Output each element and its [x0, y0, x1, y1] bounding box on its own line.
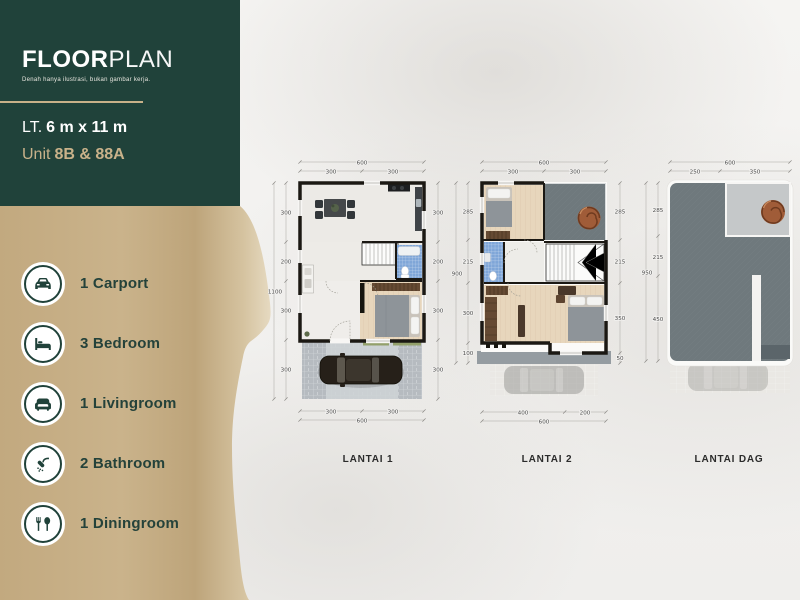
- sidebar-panel: FLOORPLAN Denah hanya ilustrasi, bukan g…: [0, 0, 240, 206]
- sofa-icon: [24, 385, 62, 423]
- dim-label: 300: [433, 309, 444, 315]
- dim-label: 250: [690, 170, 701, 176]
- car-faint: [504, 366, 584, 394]
- dim-label: 50: [616, 356, 624, 362]
- unit-prefix: Unit: [22, 146, 50, 163]
- bedroom-2: [486, 187, 512, 239]
- dim-label: 300: [281, 368, 292, 374]
- floorplan-lantai-dag: 600 250 350 950 285 215 450: [640, 155, 800, 440]
- car-icon: [24, 265, 62, 303]
- dim-label: 300: [281, 211, 292, 217]
- feature-bathroom: 2 Bathroom: [24, 441, 179, 486]
- feature-diningroom-label: 1 Diningroom: [80, 515, 179, 532]
- dim-label: 215: [615, 260, 626, 266]
- feature-bedroom-label: 3 Bedroom: [80, 335, 160, 352]
- bathroom-2: [484, 242, 504, 283]
- car-faint: [688, 363, 768, 391]
- floorplan-lantai-2: 600 300 300 900 285 215 300 100 285 215 …: [450, 155, 640, 440]
- roof-slab: [667, 180, 793, 366]
- feature-carport: 1 Carport: [24, 261, 179, 306]
- dim-label: 200: [281, 260, 292, 266]
- dim-label: 300: [326, 170, 337, 176]
- staircase-2: [546, 244, 604, 281]
- dim-label: 900: [452, 272, 463, 278]
- dim-label: 600: [539, 161, 550, 167]
- lot-size-value: 6 m x 11 m: [46, 119, 127, 136]
- lot-size-line: LT.6 m x 11 m: [22, 119, 127, 137]
- dim-label: 300: [326, 410, 337, 416]
- tree: [761, 200, 785, 224]
- staircase: [362, 243, 398, 265]
- dim-label: 200: [580, 411, 591, 417]
- dim-label: 950: [642, 271, 653, 277]
- car-top-view: [318, 353, 404, 388]
- dim-label: 100: [463, 351, 474, 357]
- brand-title: FLOORPLAN: [22, 48, 173, 72]
- feature-diningroom: 1 Diningroom: [24, 501, 179, 546]
- dim-label: 200: [433, 260, 444, 266]
- dim-label: 300: [508, 170, 519, 176]
- plan-label-lantai-dag: LANTAI DAG: [695, 454, 764, 465]
- plan-label-lantai-2: LANTAI 2: [522, 454, 573, 465]
- tree: [578, 207, 601, 230]
- dim-label: 300: [433, 368, 444, 374]
- dim-label: 600: [539, 420, 550, 426]
- dim-label: 285: [615, 210, 626, 216]
- lot-prefix: LT.: [22, 119, 42, 136]
- dim-label: 215: [653, 255, 664, 261]
- dim-label: 300: [463, 311, 474, 317]
- plan-label-lantai-1: LANTAI 1: [343, 454, 394, 465]
- dim-label: 300: [570, 170, 581, 176]
- unit-line: Unit8B & 88A: [22, 146, 125, 164]
- dim-label: 285: [653, 208, 664, 214]
- brand-title-bold: FLOOR: [22, 46, 109, 73]
- dim-label: 300: [388, 170, 399, 176]
- dim-label: 600: [725, 161, 736, 167]
- dim-label: 600: [357, 161, 368, 167]
- feature-carport-label: 1 Carport: [80, 275, 148, 292]
- cutlery-icon: [24, 505, 62, 543]
- dim-label: 1100: [268, 290, 283, 296]
- bathroom: [396, 245, 422, 279]
- feature-bathroom-label: 2 Bathroom: [80, 455, 165, 472]
- feature-livingroom-label: 1 Livingroom: [80, 395, 177, 412]
- floorplan-flyer: FLOORPLAN Denah hanya ilustrasi, bukan g…: [0, 0, 800, 600]
- feature-list: 1 Carport 3 Bedroom 1 Livingroom: [24, 261, 179, 561]
- shower-icon: [24, 445, 62, 483]
- divider-line: [0, 101, 143, 103]
- feature-livingroom: 1 Livingroom: [24, 381, 179, 426]
- dim-label: 450: [653, 317, 664, 323]
- roof-terrace: [544, 183, 606, 240]
- dim-label: 300: [388, 410, 399, 416]
- dim-label: 215: [463, 260, 474, 266]
- dim-label: 285: [463, 210, 474, 216]
- floorplan-lantai-1: 600 300 300 1100 300 200 300 300 300 200…: [268, 155, 458, 430]
- dim-label: 400: [518, 411, 529, 417]
- brand-title-light: PLAN: [109, 46, 174, 73]
- feature-bedroom: 3 Bedroom: [24, 321, 179, 366]
- dim-label: 300: [281, 309, 292, 315]
- bed-icon: [24, 325, 62, 363]
- dim-label: 300: [433, 211, 444, 217]
- unit-value: 8B & 88A: [54, 146, 124, 163]
- brand-subtitle: Denah hanya ilustrasi, bukan gambar kerj…: [22, 77, 150, 83]
- dim-label: 350: [750, 170, 761, 176]
- dim-label: 350: [615, 316, 626, 322]
- dim-label: 600: [357, 419, 368, 425]
